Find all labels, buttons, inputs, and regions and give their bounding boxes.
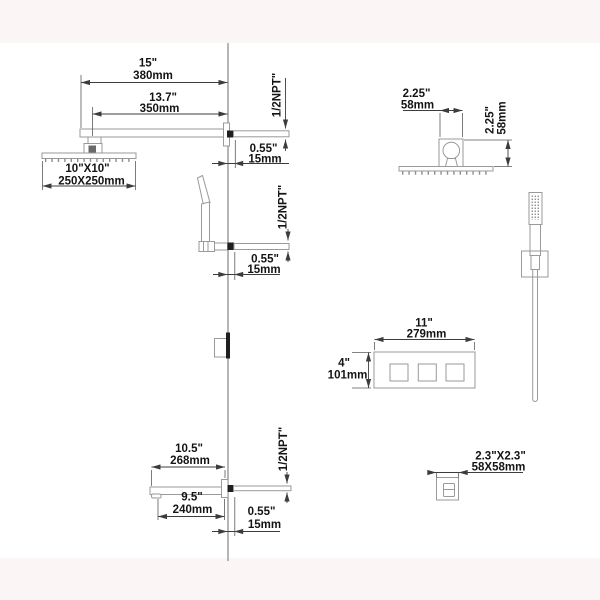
label-arm-length-in: 15" <box>139 58 157 70</box>
label-nipple-spout-in: 0.55" <box>248 506 276 518</box>
hand-shower-spray-face <box>531 195 541 220</box>
label-nipple-top-mm: 15mm <box>248 154 281 166</box>
label-spout-body-in: 9.5" <box>181 492 202 504</box>
rain-head-plate-side <box>42 153 136 159</box>
hand-shower-handle-side <box>202 202 210 242</box>
tub-spout-outlet <box>152 494 162 498</box>
ball-joint-neck-top <box>446 159 458 167</box>
valve-plate-side <box>226 333 230 359</box>
shower-arm-supply-nipple <box>234 131 290 137</box>
hand-shower-holder-side <box>199 242 215 252</box>
ball-joint-neck <box>88 137 101 144</box>
valve-knob-side <box>215 339 228 358</box>
label-valve-height-mm: 101mm <box>328 370 368 382</box>
label-arm-depth-in: 2.25" <box>485 106 497 134</box>
label-head-offset-mm: 350mm <box>140 103 180 115</box>
label-arm-length-mm: 380mm <box>133 70 173 82</box>
valve-handle-1 <box>390 364 408 381</box>
shower-arm-wall-fitting <box>227 131 234 138</box>
label-spout-reach-mm: 268mm <box>170 455 210 467</box>
label-valve-width-mm: 279mm <box>407 329 447 341</box>
tub-spout-supply-nipple <box>234 486 292 491</box>
label-thread-top: 1/2NPT" <box>272 73 284 117</box>
tub-spout-escutcheon <box>222 480 229 498</box>
diagram-canvas: 15" 380mm 13.7" 350mm 10"X10" 250X250mm … <box>0 0 600 600</box>
rain-head-plate-top <box>399 167 493 172</box>
ball-joint-circle <box>443 142 460 159</box>
label-arm-depth-mm: 58mm <box>497 101 509 134</box>
hand-shower-supply-elbow <box>215 243 228 250</box>
label-arm-width-mm: 58mm <box>401 100 434 112</box>
valve-handle-2 <box>418 364 436 381</box>
label-nipple-hand-mm: 15mm <box>247 264 280 276</box>
bottom-margin-band <box>0 558 600 600</box>
valve-handle-3 <box>446 364 464 381</box>
hand-shower-supply-nipple <box>234 244 289 250</box>
label-thread-hand: 1/2NPT" <box>278 185 290 229</box>
label-thread-spout: 1/2NPT" <box>278 427 290 471</box>
hand-shower-hose <box>533 270 538 402</box>
hand-shower-hose-connector <box>531 256 540 270</box>
ball-joint-core <box>89 146 97 153</box>
label-head-size-in: 10"X10" <box>65 163 109 175</box>
label-arm-width-in: 2.25" <box>403 88 431 100</box>
hand-shower-head-side <box>198 176 211 206</box>
label-valve-height-in: 4" <box>338 358 350 370</box>
tub-spout-wall-fitting <box>228 485 234 492</box>
label-nipple-spout-mm: 15mm <box>248 519 281 531</box>
hand-shower-wall-fitting <box>228 243 235 251</box>
shower-system-dimension-diagram: 15" 380mm 13.7" 350mm 10"X10" 250X250mm … <box>0 0 600 600</box>
label-spout-reach-in: 10.5" <box>175 443 203 455</box>
label-head-size-mm: 250X250mm <box>58 176 125 188</box>
label-spout-front-mm: 58X58mm <box>472 462 526 474</box>
top-margin-band <box>0 0 600 43</box>
label-spout-body-mm: 240mm <box>173 504 213 516</box>
shower-arm <box>80 129 228 137</box>
